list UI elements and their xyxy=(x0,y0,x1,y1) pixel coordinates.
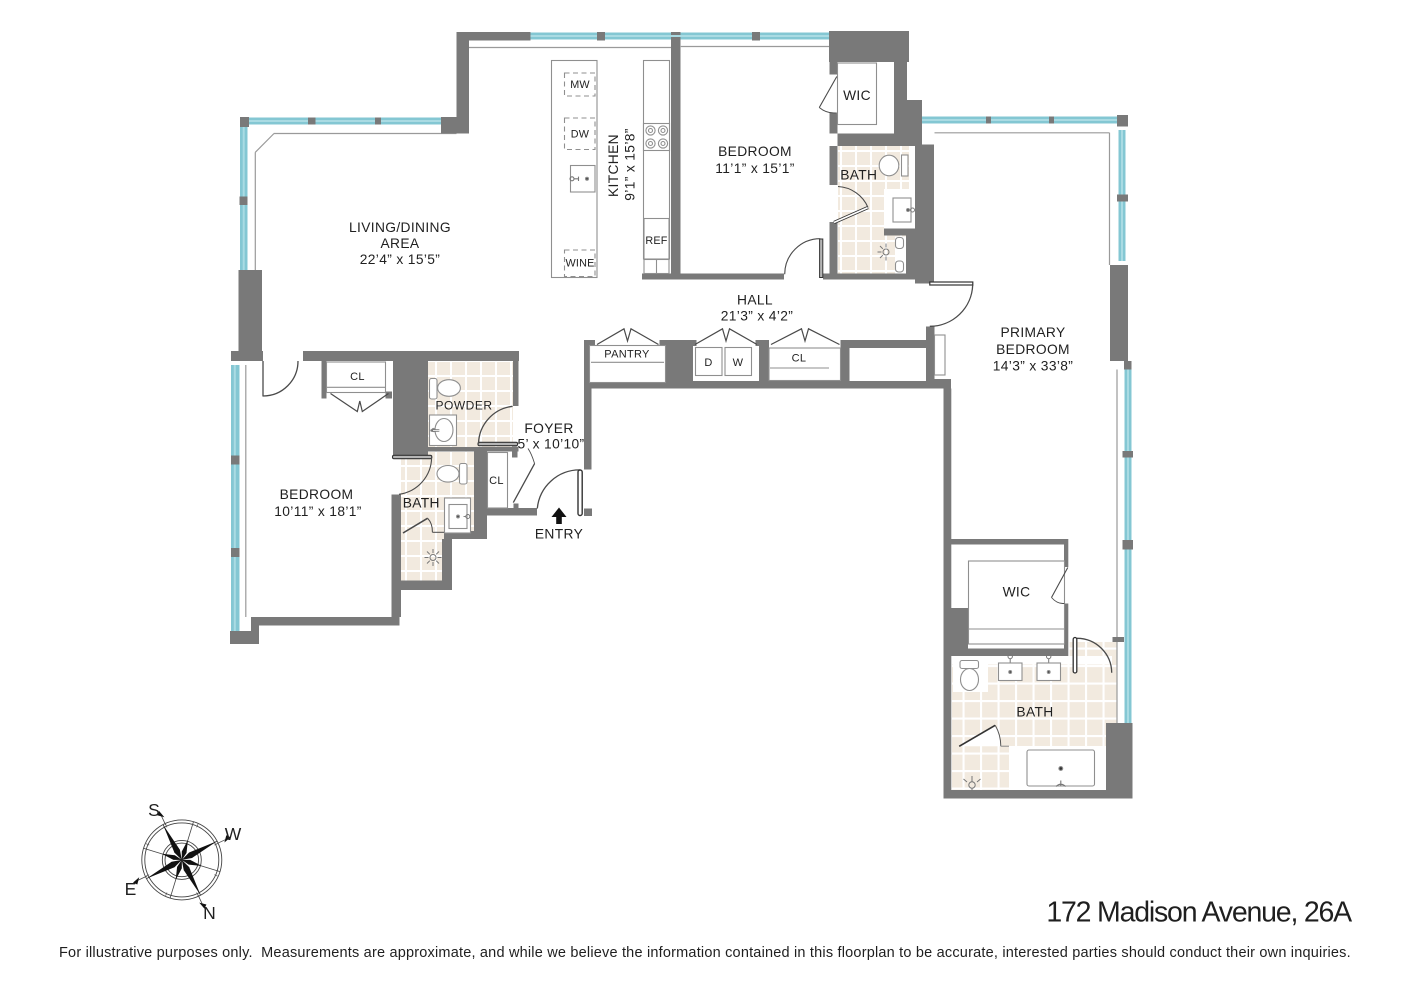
svg-text:14’3” x 33’8”: 14’3” x 33’8” xyxy=(993,359,1074,374)
svg-text:9’1” x 15’8”: 9’1” x 15’8” xyxy=(623,128,638,201)
svg-text:S: S xyxy=(148,800,160,820)
svg-text:BATH: BATH xyxy=(403,496,440,511)
svg-text:PANTRY: PANTRY xyxy=(604,349,650,361)
svg-text:CL: CL xyxy=(350,371,365,383)
svg-text:LIVING/DINING: LIVING/DINING xyxy=(349,220,451,235)
svg-text:WIC: WIC xyxy=(843,88,871,103)
svg-text:21’3” x 4’2”: 21’3” x 4’2” xyxy=(721,308,794,323)
svg-text:AREA: AREA xyxy=(381,236,420,251)
svg-text:W: W xyxy=(225,824,242,844)
svg-text:D: D xyxy=(704,357,712,369)
svg-text:REF: REF xyxy=(645,235,667,247)
svg-text:CL: CL xyxy=(489,475,504,487)
svg-text:E: E xyxy=(125,879,137,899)
svg-text:172 Madison Avenue, 26A: 172 Madison Avenue, 26A xyxy=(1046,897,1352,929)
svg-text:N: N xyxy=(203,903,216,923)
svg-text:10’11” x 18’1”: 10’11” x 18’1” xyxy=(274,504,362,519)
svg-text:KITCHEN: KITCHEN xyxy=(606,134,621,197)
svg-text:HALL: HALL xyxy=(737,293,773,308)
svg-text:BEDROOM: BEDROOM xyxy=(718,144,792,159)
svg-text:CL: CL xyxy=(792,352,807,364)
svg-text:11’1” x 15’1”: 11’1” x 15’1” xyxy=(715,161,795,176)
svg-text:POWDER: POWDER xyxy=(436,399,493,413)
svg-text:ENTRY: ENTRY xyxy=(535,527,583,542)
svg-text:DW: DW xyxy=(571,129,590,141)
svg-text:WINE: WINE xyxy=(566,258,595,270)
svg-text:5’ x 10’10”: 5’ x 10’10” xyxy=(518,437,585,452)
svg-text:BEDROOM: BEDROOM xyxy=(996,342,1070,357)
svg-text:WIC: WIC xyxy=(1003,585,1031,600)
svg-text:22’4” x 15’5”: 22’4” x 15’5” xyxy=(360,252,441,267)
svg-text:BATH: BATH xyxy=(1016,705,1053,720)
svg-text:BATH: BATH xyxy=(840,167,877,182)
svg-text:BEDROOM: BEDROOM xyxy=(280,487,354,502)
svg-text:W: W xyxy=(733,357,744,369)
svg-text:FOYER: FOYER xyxy=(524,421,573,436)
svg-text:For illustrative purposes only: For illustrative purposes only. Measurem… xyxy=(59,945,1351,961)
svg-text:MW: MW xyxy=(570,79,590,91)
svg-text:PRIMARY: PRIMARY xyxy=(1000,325,1065,340)
